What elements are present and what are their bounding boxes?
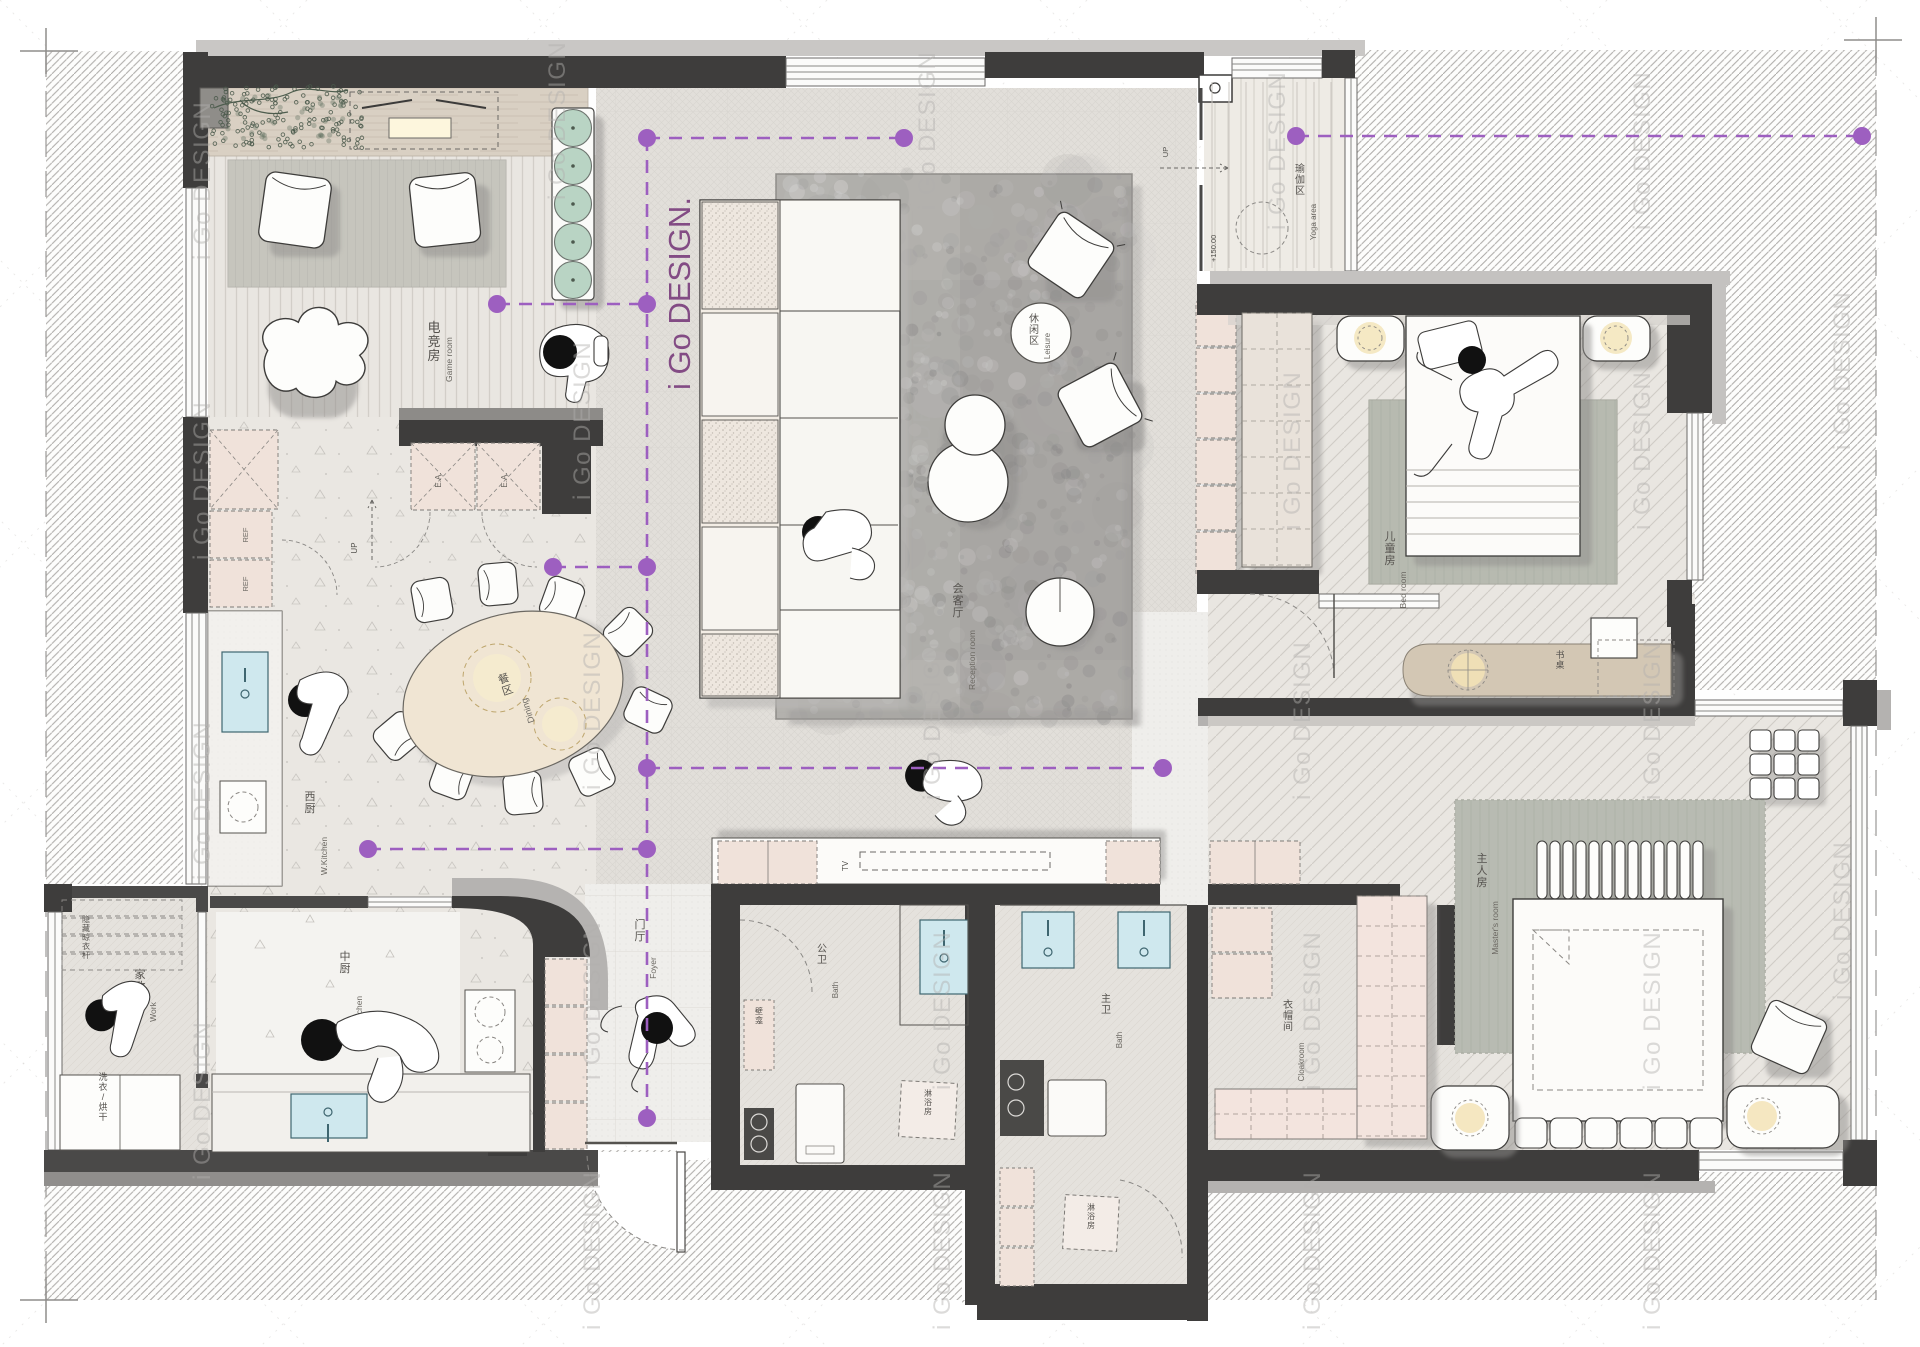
- svg-text:i Go DESIGN: i Go DESIGN: [914, 51, 941, 210]
- svg-text:Master's room: Master's room: [1490, 901, 1500, 955]
- svg-text:Bath: Bath: [1115, 1032, 1124, 1048]
- svg-text:+150.00: +150.00: [1209, 235, 1218, 262]
- svg-text:W.Kitchen: W.Kitchen: [319, 837, 329, 876]
- svg-text:i Go DESIGN: i Go DESIGN: [1829, 291, 1856, 450]
- svg-text:i Go DESIGN: i Go DESIGN: [1629, 71, 1656, 230]
- svg-text:公: 公: [817, 944, 827, 955]
- svg-text:主: 主: [1477, 852, 1488, 865]
- svg-text:隐: 隐: [82, 914, 90, 924]
- svg-text:烘: 烘: [98, 1101, 107, 1112]
- svg-text:i Go DESIGN: i Go DESIGN: [1639, 931, 1666, 1090]
- svg-text:E.A.: E.A.: [434, 472, 443, 487]
- svg-text:UP: UP: [1161, 147, 1170, 157]
- svg-text:会: 会: [953, 582, 964, 595]
- svg-text:区: 区: [1295, 185, 1305, 197]
- svg-text:房: 房: [427, 348, 440, 363]
- svg-text:i Go DESIGN: i Go DESIGN: [1264, 71, 1291, 230]
- svg-text:i Go DESIGN: i Go DESIGN: [189, 101, 216, 260]
- svg-text:i Go DESIGN.: i Go DESIGN.: [662, 197, 697, 390]
- svg-text:浴: 浴: [924, 1097, 932, 1107]
- svg-text:卫: 卫: [1101, 1005, 1111, 1016]
- svg-text:门: 门: [635, 917, 646, 931]
- svg-text:UP: UP: [350, 542, 359, 553]
- svg-text:电: 电: [427, 320, 440, 335]
- svg-text:晾: 晾: [82, 932, 90, 942]
- svg-text:Yoga area: Yoga area: [1309, 203, 1318, 240]
- svg-text:TV: TV: [841, 860, 850, 871]
- svg-text:衣: 衣: [98, 1081, 107, 1092]
- svg-text:厅: 厅: [635, 931, 646, 943]
- svg-text:i Go DESIGN: i Go DESIGN: [1279, 371, 1306, 530]
- svg-text:E.A.: E.A.: [500, 472, 509, 487]
- svg-text:中: 中: [340, 950, 351, 963]
- svg-text:厅: 厅: [953, 607, 964, 619]
- svg-text:i Go DESIGN: i Go DESIGN: [544, 41, 571, 200]
- svg-text:i Go DESIGN: i Go DESIGN: [569, 341, 596, 500]
- svg-text:Bed room: Bed room: [1398, 572, 1408, 609]
- svg-text:衣: 衣: [82, 941, 90, 951]
- svg-text:儿: 儿: [1385, 530, 1396, 543]
- svg-text:厨: 厨: [305, 802, 316, 815]
- svg-text:杆: 杆: [82, 950, 90, 960]
- svg-text:i Go DESIGN: i Go DESIGN: [929, 931, 956, 1090]
- svg-text:房: 房: [924, 1106, 932, 1116]
- svg-text:龛: 龛: [755, 1015, 763, 1025]
- svg-text:i Go DESIGN: i Go DESIGN: [919, 641, 946, 800]
- svg-text:休: 休: [1029, 313, 1039, 325]
- svg-text:人: 人: [1477, 864, 1488, 877]
- svg-text:闲: 闲: [1029, 323, 1039, 336]
- svg-text:卫: 卫: [817, 955, 827, 966]
- svg-text:Game room: Game room: [444, 337, 454, 382]
- svg-text:间: 间: [1283, 1020, 1293, 1033]
- svg-text:Bath: Bath: [831, 982, 840, 998]
- svg-text:厨: 厨: [340, 962, 351, 975]
- svg-text:i Go DESIGN: i Go DESIGN: [579, 631, 606, 790]
- svg-text:i Go DESIGN: i Go DESIGN: [1299, 1171, 1326, 1330]
- svg-text:i Go DESIGN: i Go DESIGN: [1829, 841, 1856, 1000]
- svg-text:REF: REF: [241, 527, 250, 542]
- svg-text:童: 童: [1385, 541, 1396, 555]
- svg-text:Work: Work: [148, 1001, 158, 1021]
- svg-text:i Go DESIGN: i Go DESIGN: [1299, 931, 1326, 1090]
- svg-text:帽: 帽: [1283, 1009, 1293, 1022]
- svg-text:壁: 壁: [755, 1006, 763, 1016]
- svg-text:i Go DESIGN: i Go DESIGN: [1289, 641, 1316, 800]
- svg-text:i Go DESIGN: i Go DESIGN: [1639, 641, 1666, 800]
- svg-text:客: 客: [953, 593, 964, 607]
- svg-text:i Go DESIGN: i Go DESIGN: [579, 921, 606, 1080]
- svg-text:淋: 淋: [1087, 1202, 1095, 1212]
- svg-text:Foyer: Foyer: [648, 957, 658, 979]
- svg-text:Reception room: Reception room: [967, 630, 977, 690]
- svg-text:i Go DESIGN: i Go DESIGN: [1639, 1171, 1666, 1330]
- svg-text:桌: 桌: [1555, 659, 1564, 670]
- svg-text:家: 家: [135, 967, 146, 981]
- svg-text:房: 房: [1477, 876, 1488, 889]
- svg-text:浴: 浴: [1087, 1211, 1095, 1221]
- svg-text:i Go DESIGN: i Go DESIGN: [929, 1171, 956, 1330]
- svg-text:REF: REF: [241, 576, 250, 591]
- svg-text:i Go DESIGN: i Go DESIGN: [189, 721, 216, 880]
- svg-text:i Go DESIGN: i Go DESIGN: [189, 401, 216, 560]
- svg-text:Leisure: Leisure: [1043, 332, 1052, 359]
- svg-text:书: 书: [1555, 650, 1564, 660]
- svg-text:i Go DESIGN: i Go DESIGN: [1629, 371, 1656, 530]
- svg-text:伽: 伽: [1295, 173, 1305, 186]
- svg-text:藏: 藏: [82, 923, 90, 933]
- svg-text:衣: 衣: [1283, 998, 1293, 1011]
- svg-text:竞: 竞: [427, 334, 440, 349]
- svg-text:i Go DESIGN: i Go DESIGN: [579, 1171, 606, 1330]
- svg-text:i Go DESIGN: i Go DESIGN: [189, 1021, 216, 1180]
- svg-text:房: 房: [1087, 1220, 1095, 1230]
- svg-text:主: 主: [1101, 993, 1111, 1005]
- svg-text:区: 区: [1029, 335, 1039, 347]
- svg-text:西: 西: [305, 791, 316, 803]
- svg-text:房: 房: [1385, 554, 1396, 567]
- svg-text:瑜: 瑜: [1295, 162, 1305, 175]
- svg-text:干: 干: [98, 1112, 107, 1122]
- svg-text:i Go DESIGN: i Go DESIGN: [909, 341, 936, 500]
- svg-text:洗: 洗: [98, 1071, 107, 1082]
